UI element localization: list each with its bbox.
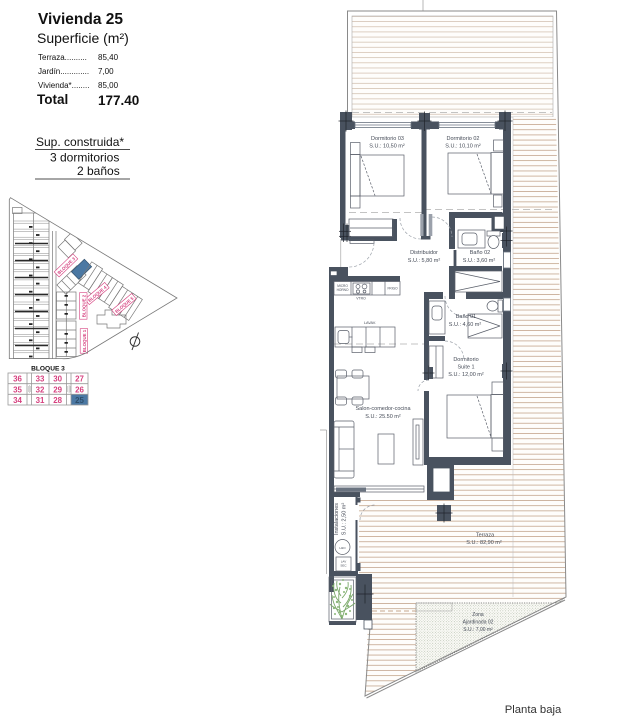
svg-text:Vivienda 25: Vivienda 25 [38, 11, 123, 28]
svg-text:FRIGO: FRIGO [387, 287, 398, 291]
svg-text:35: 35 [13, 385, 22, 394]
svg-text:S.U.: 82,90 m²: S.U.: 82,90 m² [466, 540, 502, 546]
svg-text:Dormitorio: Dormitorio [453, 357, 478, 363]
svg-text:BLOQUE 2: BLOQUE 2 [81, 294, 86, 317]
svg-text:30: 30 [53, 375, 62, 384]
svg-text:Zona: Zona [472, 612, 484, 618]
svg-text:Planta baja: Planta baja [505, 704, 562, 716]
svg-text:36: 36 [13, 375, 22, 384]
svg-text:Terraza..........: Terraza.......... [38, 53, 87, 62]
svg-text:Dormitorio 03: Dormitorio 03 [371, 136, 404, 142]
svg-text:H2O: H2O [339, 546, 346, 550]
svg-text:28: 28 [53, 396, 62, 405]
svg-text:3 dormitorios: 3 dormitorios [50, 151, 119, 165]
svg-text:25: 25 [75, 396, 84, 405]
svg-text:Baño 02: Baño 02 [470, 250, 491, 256]
svg-text:33: 33 [36, 375, 45, 384]
svg-text:27: 27 [75, 375, 84, 384]
svg-text:Suite 1: Suite 1 [457, 365, 474, 371]
svg-text:177.40: 177.40 [98, 93, 139, 108]
svg-text:S.U.: 5,80 m²: S.U.: 5,80 m² [408, 258, 441, 264]
svg-text:S.U.: 10,10 m²: S.U.: 10,10 m² [445, 144, 481, 150]
svg-text:85,00: 85,00 [98, 81, 119, 90]
svg-text:Distribuidor: Distribuidor [410, 250, 438, 256]
svg-text:2 baños: 2 baños [77, 164, 120, 178]
svg-text:Terraza: Terraza [476, 533, 495, 539]
svg-text:Instalaciones: Instalaciones [334, 503, 340, 535]
svg-text:29: 29 [53, 385, 62, 394]
svg-text:Ajardinada 02: Ajardinada 02 [463, 620, 494, 626]
svg-text:VTRO: VTRO [356, 297, 366, 301]
svg-text:S.U.: 3,60 m²: S.U.: 3,60 m² [463, 258, 496, 264]
svg-text:Vivienda*........: Vivienda*........ [38, 81, 89, 90]
svg-text:Dormitorio 02: Dormitorio 02 [446, 136, 479, 142]
svg-text:26: 26 [75, 385, 84, 394]
svg-text:S.U.: 25.50 m²: S.U.: 25.50 m² [365, 414, 401, 420]
svg-text:SEC: SEC [340, 564, 347, 568]
svg-text:BLOQUE 1: BLOQUE 1 [82, 329, 87, 352]
svg-text:HORNO: HORNO [337, 288, 349, 292]
svg-text:7,00: 7,00 [98, 67, 114, 76]
svg-text:85,40: 85,40 [98, 53, 119, 62]
svg-text:BLOQUE 3: BLOQUE 3 [31, 366, 65, 373]
svg-text:Jardín.............: Jardín............. [38, 67, 89, 76]
svg-text:S.U.: 12,00 m²: S.U.: 12,00 m² [448, 372, 484, 378]
svg-text:Baño 01: Baño 01 [456, 314, 477, 320]
svg-text:31: 31 [36, 396, 45, 405]
svg-text:Superficie (m²): Superficie (m²) [37, 30, 129, 46]
svg-text:S.U.: 10,50 m²: S.U.: 10,50 m² [369, 144, 405, 150]
svg-text:34: 34 [13, 396, 22, 405]
svg-text:S.U.: 4,60 m²: S.U.: 4,60 m² [449, 322, 482, 328]
svg-text:S.U.: 2,50 m²: S.U.: 2,50 m² [342, 503, 348, 536]
svg-text:Total: Total [37, 92, 68, 107]
svg-text:Sup. construida*: Sup. construida* [36, 135, 124, 149]
svg-text:32: 32 [36, 385, 45, 394]
svg-text:LAVAV.: LAVAV. [364, 321, 376, 325]
svg-text:S.U.: 7,00 m²: S.U.: 7,00 m² [463, 627, 493, 633]
svg-text:Salon-comedor-cocina: Salon-comedor-cocina [355, 406, 411, 412]
